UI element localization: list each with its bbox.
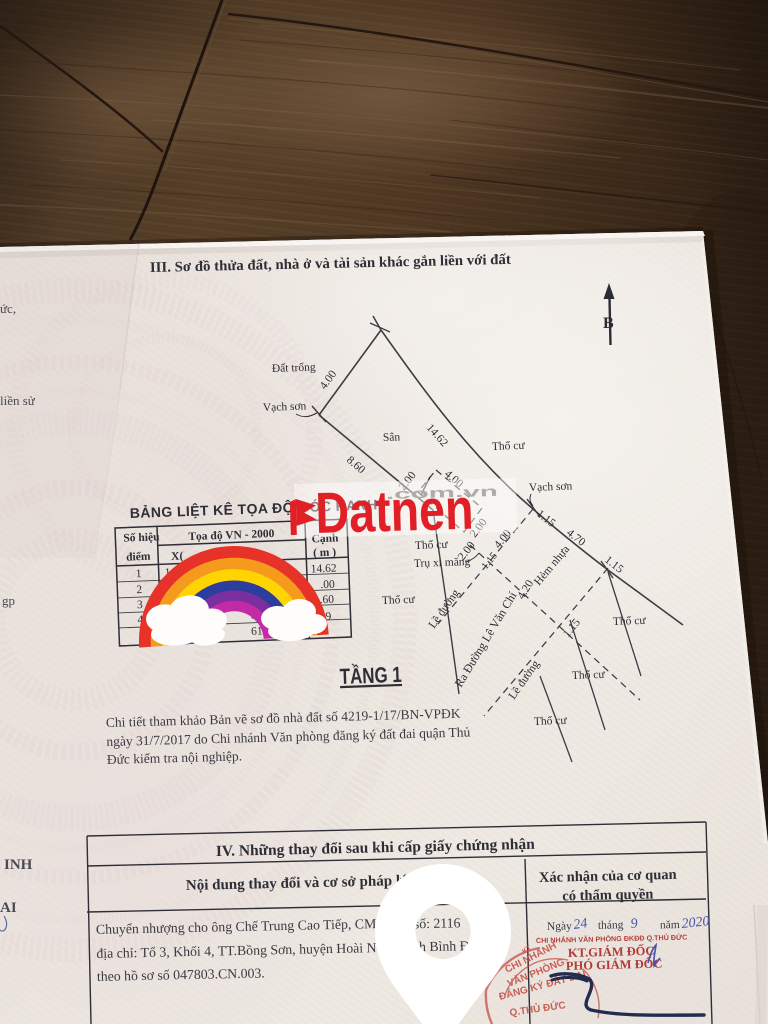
svg-text:9: 9: [630, 916, 638, 932]
svg-text:.00: .00: [320, 579, 335, 592]
svg-text:24: 24: [572, 916, 588, 933]
svg-text:năm: năm: [660, 919, 680, 931]
svg-text:( m ): ( m ): [313, 547, 337, 560]
svg-text:Datnen: Datnen: [315, 477, 475, 546]
svg-text:Thổ cư: Thổ cư: [492, 439, 526, 453]
svg-text:Thổ cư: Thổ cư: [534, 714, 568, 728]
svg-text:2020: 2020: [681, 914, 710, 932]
svg-text:INH: INH: [4, 857, 33, 873]
svg-text:X(: X(: [171, 550, 184, 562]
svg-text:B: B: [603, 315, 614, 332]
svg-text:Xác nhận của cơ quan: Xác nhận của cơ quan: [539, 867, 677, 886]
svg-text:Thổ cư: Thổ cư: [613, 614, 647, 628]
svg-text:3: 3: [137, 599, 143, 611]
svg-text:TẦNG 1: TẦNG 1: [339, 662, 402, 689]
svg-text:1: 1: [136, 568, 142, 580]
svg-text:ức,: ức,: [0, 301, 16, 316]
svg-text:Vạch sơn: Vạch sơn: [263, 400, 307, 414]
svg-text:Số hiệu: Số hiệu: [123, 530, 160, 544]
svg-text:Ngày: Ngày: [547, 920, 572, 933]
svg-text:14.62: 14.62: [311, 563, 338, 576]
svg-text:2: 2: [136, 584, 142, 596]
svg-text:Thổ cư: Thổ cư: [382, 593, 416, 607]
svg-text:gp: gp: [2, 593, 15, 608]
svg-text:liền sử: liền sử: [0, 393, 36, 408]
svg-text:số: 2116: số: 2116: [414, 915, 461, 931]
svg-text:Thổ cư: Thổ cư: [572, 668, 606, 682]
svg-text:có thẩm quyền: có thẩm quyền: [562, 886, 653, 904]
svg-text:Vạch sơn: Vạch sơn: [529, 480, 573, 494]
svg-text:Sân: Sân: [383, 431, 401, 444]
svg-text:điểm: điểm: [126, 550, 151, 564]
svg-text:AI: AI: [0, 900, 17, 916]
svg-text:tháng: tháng: [598, 919, 624, 932]
svg-text:Đất trống: Đất trống: [272, 360, 316, 375]
